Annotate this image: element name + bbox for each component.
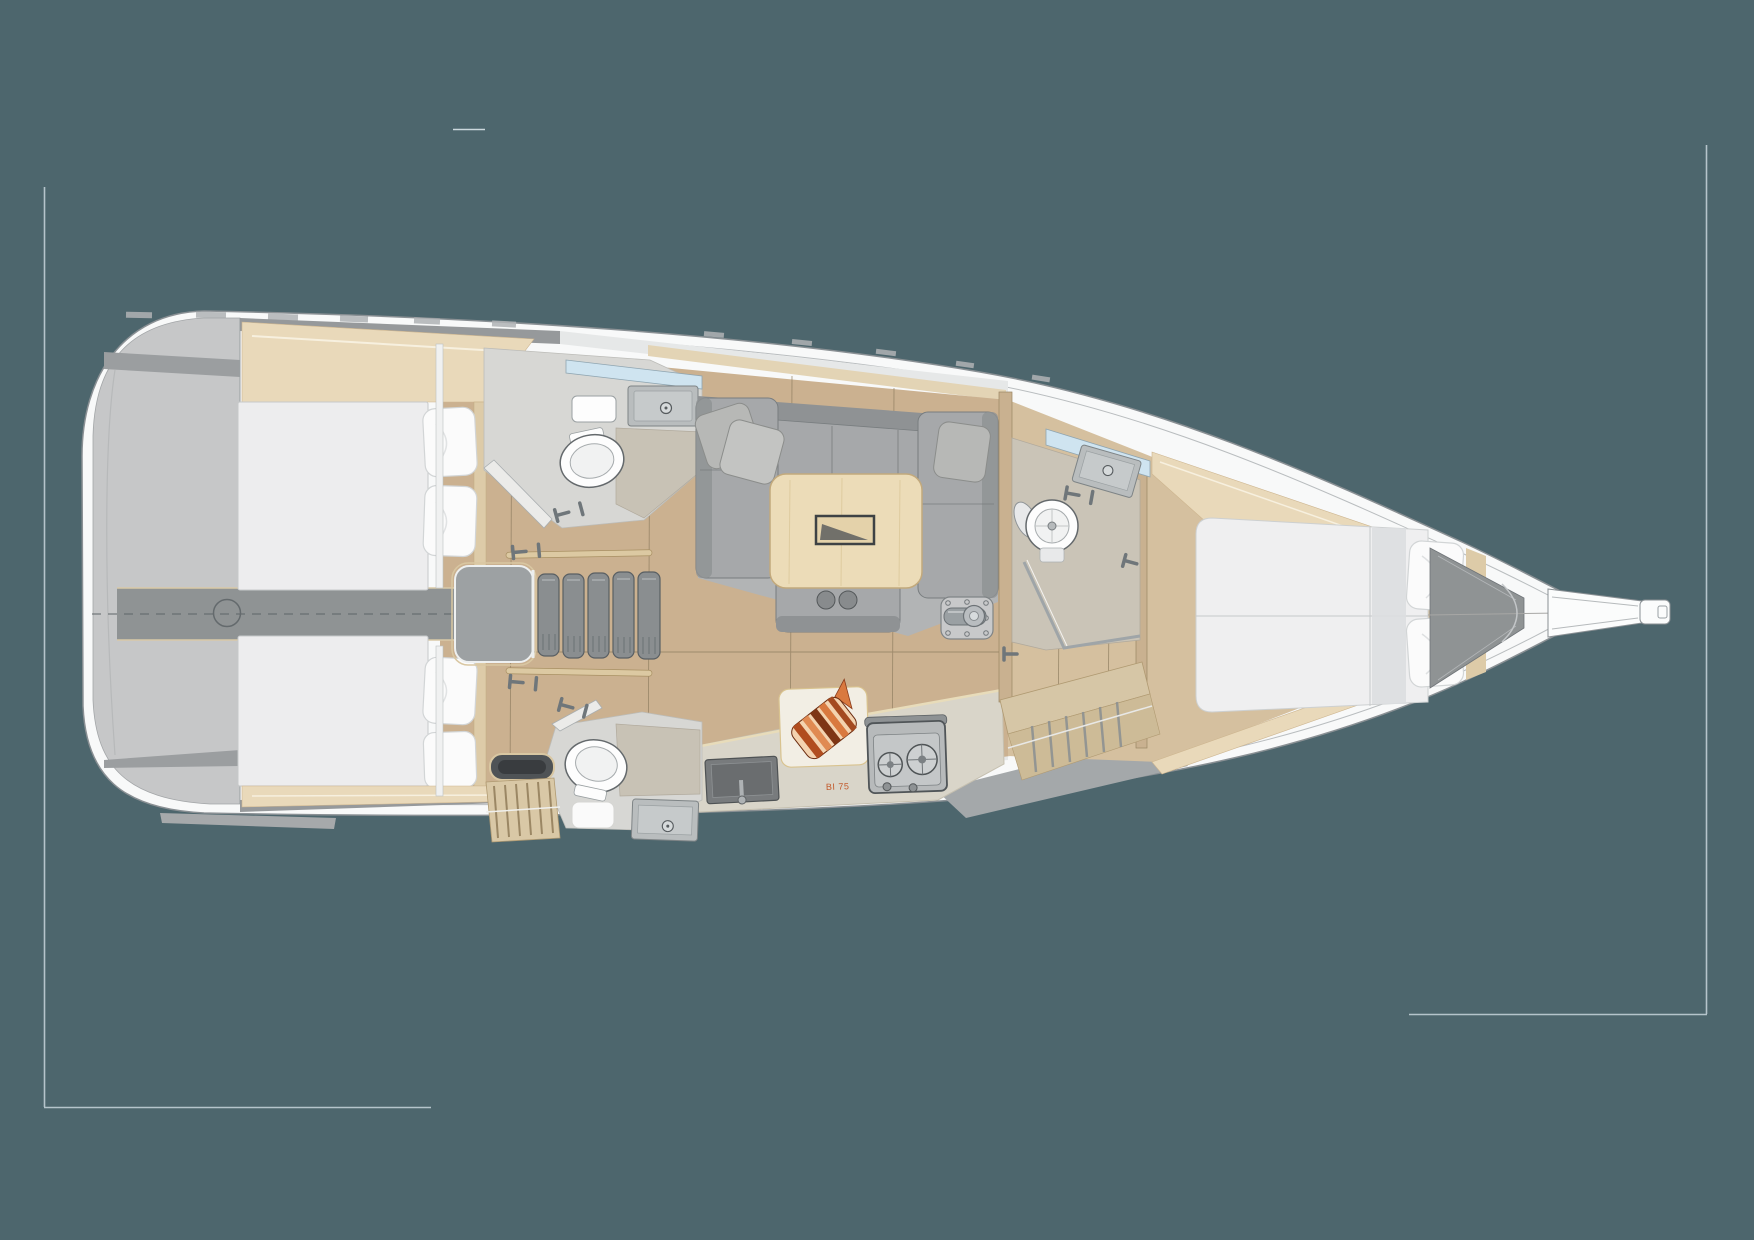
aft-bulkhead-starboard — [436, 646, 443, 796]
cupholder — [839, 591, 857, 609]
sofa-bench-bottom-edge — [776, 616, 900, 632]
saloon-table — [770, 474, 922, 588]
engine-compartment-strip — [92, 588, 479, 640]
bath-mat — [572, 802, 614, 828]
berth-head-band — [1372, 528, 1406, 704]
shower-floor — [616, 724, 700, 796]
burner — [878, 752, 903, 777]
washbasin — [628, 386, 698, 426]
galley-sink — [705, 756, 779, 806]
stove-knob — [883, 783, 891, 791]
burner — [907, 744, 938, 775]
washbasin — [631, 799, 698, 841]
yacht-floorplan-stage: BI 75 — [0, 0, 1754, 1240]
teak-seat — [486, 778, 560, 842]
galley-model-label: BI 75 — [826, 781, 850, 792]
pillow — [422, 657, 477, 726]
transom-deck — [93, 318, 240, 804]
flush-center — [1048, 522, 1056, 530]
stove — [865, 715, 950, 794]
mast-foot-knob-center — [970, 612, 979, 621]
companionway-steps — [538, 572, 660, 659]
yacht-floorplan-drawing: BI 75 — [0, 0, 1754, 1240]
cupholder — [817, 591, 835, 609]
pillow — [932, 421, 991, 484]
engine-strip — [117, 588, 479, 640]
aft-bulkhead-port — [436, 344, 443, 588]
stern-transom — [93, 318, 240, 804]
cutting-board — [779, 679, 873, 767]
shelf-highlight — [252, 795, 514, 796]
toilet-base — [1040, 548, 1064, 562]
pillow — [423, 485, 477, 557]
companionway-landing — [455, 566, 533, 662]
pillow — [423, 731, 477, 789]
toilet-cistern — [572, 396, 616, 422]
double-berth-mattress — [238, 402, 428, 590]
pillow — [422, 407, 477, 478]
bow-fitting — [1640, 600, 1670, 624]
pillows — [422, 657, 477, 789]
double-berth-mattress — [238, 636, 428, 786]
stove-knob — [909, 784, 917, 792]
vent-grille-slot — [498, 760, 546, 774]
mast-step — [941, 597, 993, 639]
forward-head — [1009, 429, 1150, 650]
